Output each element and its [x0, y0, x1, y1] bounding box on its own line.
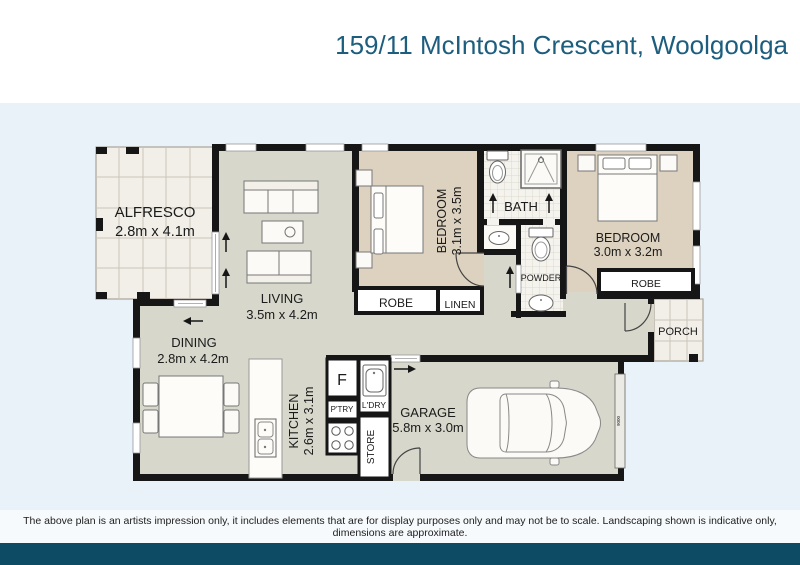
garage-label: GARAGE — [400, 405, 456, 420]
coffee-table-icon — [262, 221, 303, 243]
bedroom2-label: BEDROOM — [596, 231, 661, 245]
store-label: STORE — [366, 430, 377, 465]
pantry-label: P'TRY — [331, 405, 354, 414]
bedroom1-label: BEDROOM — [435, 189, 449, 254]
fridge-label: F — [337, 372, 347, 389]
porch-label: PORCH — [658, 326, 698, 338]
living-dims: 3.5m x 4.2m — [246, 307, 318, 322]
robe2-label: ROBE — [631, 278, 661, 290]
sofa-3seat-icon — [244, 181, 318, 213]
kitchen-dims: 2.6m x 3.1m — [302, 387, 316, 456]
powder-label: POWDER — [521, 273, 562, 283]
bedroom2-dims: 3.0m x 3.2m — [594, 245, 663, 259]
robe1-label: ROBE — [379, 296, 413, 310]
dining-label: DINING — [171, 335, 217, 350]
kitchen-label: KITCHEN — [287, 394, 301, 449]
alfresco-dims: 2.8m x 4.1m — [115, 224, 195, 240]
floor-plan-svg: ALFRESCO 2.8m x 4.1m LIVING 3.5m x 4.2m … — [0, 0, 800, 565]
garage-door-width-label: 9000 — [616, 415, 621, 426]
dining-dims: 2.8m x 4.2m — [157, 351, 229, 366]
floor-plan-page: 159/11 McIntosh Crescent, Woolgoolga The… — [0, 0, 800, 565]
living-label: LIVING — [261, 291, 304, 306]
garage-dims: 5.8m x 3.0m — [392, 420, 464, 435]
linen-label: LINEN — [445, 299, 476, 311]
alfresco-area — [96, 147, 213, 299]
kitchen-island — [249, 359, 282, 478]
vanity-basin-icon — [489, 232, 509, 245]
laundry-label: L'DRY — [362, 400, 386, 410]
shower-icon — [521, 150, 561, 188]
powder-basin-icon — [529, 295, 553, 311]
alfresco-label: ALFRESCO — [115, 204, 196, 221]
bath-label: BATH — [504, 199, 538, 214]
car-icon — [467, 381, 601, 465]
sofa-2seat-icon — [247, 251, 311, 283]
bedroom1-dims: 3.1m x 3.5m — [450, 187, 464, 256]
